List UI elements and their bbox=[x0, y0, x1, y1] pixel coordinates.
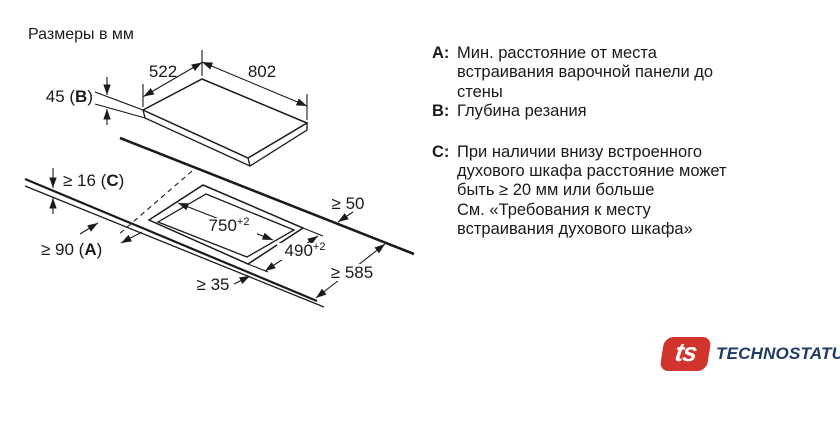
dim-90-arrow2 bbox=[121, 232, 142, 243]
dim-panel-height: 45 (B) bbox=[46, 87, 93, 106]
dim-panel-depth: 522 bbox=[149, 62, 177, 81]
legend-item-a: A: Мин. расстояние от места встраивания … bbox=[432, 44, 792, 102]
panel-dimensions: 522 802 45 (B) bbox=[46, 50, 307, 125]
legend-line: При наличии внизу встроенного bbox=[457, 143, 727, 162]
dim-490-ext1 bbox=[303, 228, 323, 236]
legend-line: встраивания духового шкафа» bbox=[457, 220, 727, 239]
dim-wall-clearance: ≥ 90 (A) bbox=[41, 240, 102, 259]
legend-item-b-label: B: bbox=[432, 102, 457, 121]
dim-50-arrow bbox=[338, 212, 353, 222]
cooktop-panel bbox=[143, 79, 307, 166]
legend-line: Мин. расстояние от места bbox=[457, 44, 713, 63]
dim-worktop-thickness: ≥ 16 (C) bbox=[63, 171, 124, 190]
dim-front-clearance: ≥ 35 bbox=[197, 275, 230, 294]
legend-item-b: B: Глубина резания bbox=[432, 102, 792, 121]
logo-badge-icon: ts bbox=[659, 337, 711, 371]
legend-item-c-label: C: bbox=[432, 143, 457, 240]
legend-item-a-label: A: bbox=[432, 44, 457, 102]
legend-item-c: C: При наличии внизу встроенного духовог… bbox=[432, 143, 792, 240]
dim-panel-width: 802 bbox=[248, 62, 276, 81]
page: Размеры в мм 750+2 490+ bbox=[0, 0, 840, 440]
dim-rear-clearance: ≥ 50 bbox=[332, 194, 365, 213]
legend: A: Мин. расстояние от места встраивания … bbox=[432, 44, 792, 240]
legend-line: духового шкафа расстояние может bbox=[457, 162, 727, 181]
legend-line: быть ≥ 20 мм или больше bbox=[457, 181, 727, 200]
logo-name: TECHNOSTATUS bbox=[716, 344, 840, 364]
installation-diagram: 750+2 490+2 ≥ 50 ≥ 585 ≥ 35 ≥ 16 (C) ≥ 9… bbox=[0, 0, 440, 330]
logo-badge-text: ts bbox=[673, 339, 699, 369]
legend-line: См. «Требования к месту bbox=[457, 201, 727, 220]
legend-line: стены bbox=[457, 83, 713, 102]
legend-line: встраивания варочной панели до bbox=[457, 63, 713, 82]
dim-35-arrow bbox=[234, 276, 250, 284]
dim-45-ext-top bbox=[95, 92, 143, 110]
technostatus-logo: ts TECHNOSTATUS bbox=[662, 337, 840, 371]
dim-worktop-depth: ≥ 585 bbox=[331, 263, 373, 282]
dim-90-arrow1 bbox=[80, 223, 98, 234]
section-dashed-line bbox=[118, 171, 192, 235]
legend-line: Глубина резания bbox=[457, 102, 587, 121]
dim-45-ext-bottom bbox=[95, 104, 145, 118]
